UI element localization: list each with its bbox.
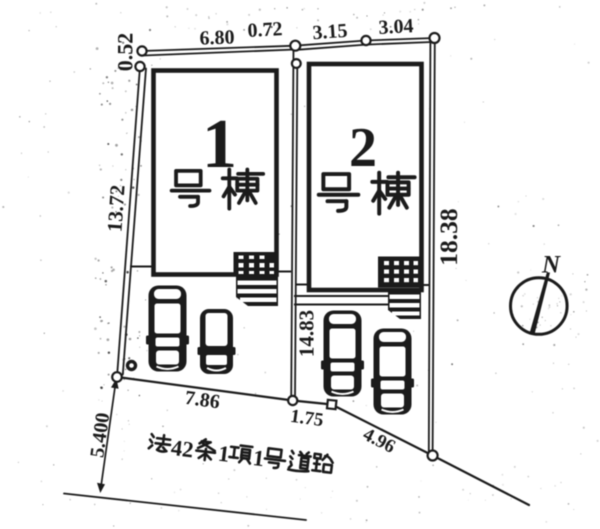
- svg-text:42: 42: [170, 435, 195, 463]
- svg-text:5.400: 5.400: [86, 411, 114, 459]
- svg-text:0.72: 0.72: [247, 18, 283, 42]
- svg-text:7.86: 7.86: [183, 387, 221, 414]
- svg-text:1: 1: [202, 106, 237, 183]
- svg-text:4.96: 4.96: [359, 424, 398, 458]
- svg-text:3.04: 3.04: [378, 15, 414, 39]
- svg-text:1: 1: [217, 441, 231, 467]
- svg-text:1.75: 1.75: [289, 406, 325, 431]
- svg-text:13.72: 13.72: [102, 184, 129, 233]
- svg-text:2: 2: [349, 117, 377, 179]
- svg-text:0.52: 0.52: [113, 33, 138, 72]
- svg-text:14.83: 14.83: [295, 310, 319, 357]
- svg-text:6.80: 6.80: [199, 26, 235, 49]
- svg-text:18.38: 18.38: [434, 208, 463, 265]
- svg-text:3.15: 3.15: [312, 20, 348, 44]
- svg-text:N: N: [541, 252, 561, 279]
- svg-text:1: 1: [252, 445, 266, 471]
